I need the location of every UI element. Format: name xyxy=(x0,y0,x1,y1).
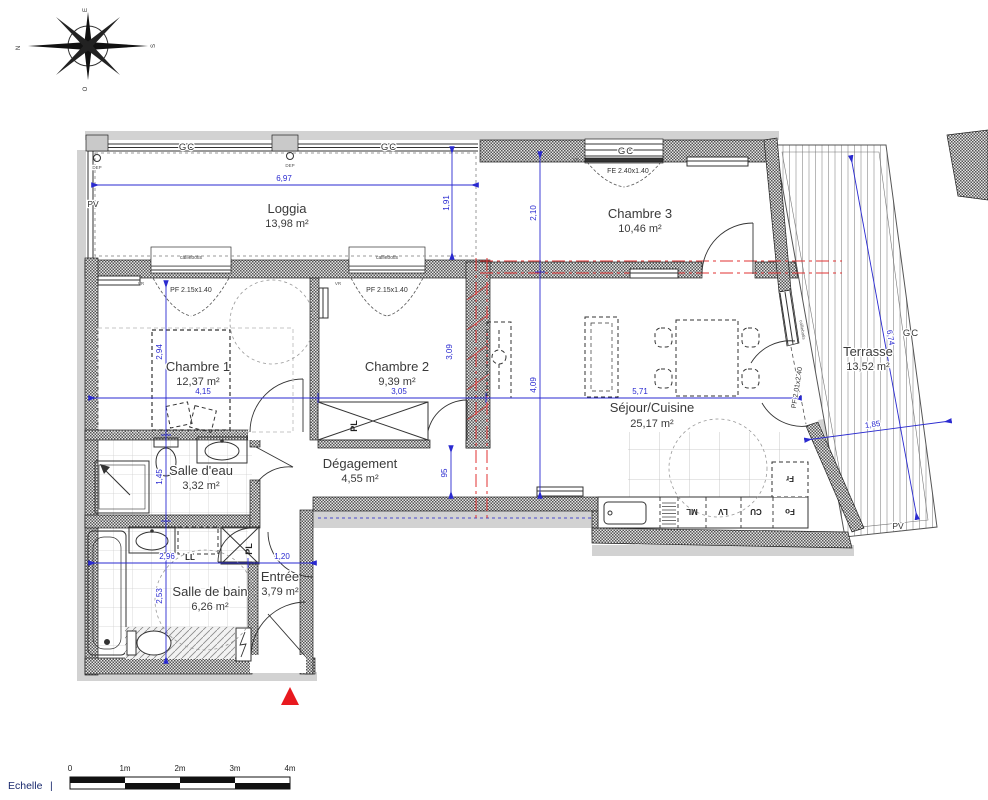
pv-label: PV xyxy=(87,199,99,209)
lave-vaisselle-label: LV xyxy=(718,507,728,516)
room-area-loggia: 13,98 m² xyxy=(265,218,309,230)
chair xyxy=(742,328,759,347)
four-label: Fo xyxy=(785,507,795,516)
cuisson-label: CU xyxy=(750,507,762,516)
frigo-label: Fr xyxy=(786,474,794,483)
south-wall xyxy=(85,658,252,674)
dim-salle-bain-depth: 2,53 xyxy=(155,588,164,604)
scale-tick-2: 2m xyxy=(174,764,185,773)
vr-label: VR xyxy=(335,281,342,286)
gc-label: GC xyxy=(903,328,919,339)
dep-label: DEP xyxy=(92,165,101,170)
chambre3-window-label: FE 2.40x1.40 xyxy=(607,168,649,175)
degagement-south-wall xyxy=(313,497,605,511)
joint-wall xyxy=(466,262,490,448)
dep-drain-icon xyxy=(287,153,294,160)
neighbour-wall xyxy=(947,130,988,200)
caillebotis-label: caillebotis xyxy=(180,255,202,261)
sejour-furniture xyxy=(487,317,759,398)
entree-east-wall xyxy=(300,510,313,674)
nightstand xyxy=(166,402,192,428)
room-name-degagement: Dégagement xyxy=(323,456,398,471)
dim-sejour-width: 5,71 xyxy=(632,387,648,396)
scale-tick-3: 3m xyxy=(229,764,240,773)
gc-label: GC xyxy=(179,142,195,153)
dim-chambre2-depth: 3,09 xyxy=(445,344,454,360)
dim-chambre2-width: 3,05 xyxy=(391,387,407,396)
placard-label: PL xyxy=(349,420,359,432)
room-name-sejour: Séjour/Cuisine xyxy=(610,400,695,415)
room-area-entree: 3,79 m² xyxy=(261,586,299,598)
dim-loggia-depth: 1,91 xyxy=(442,195,451,211)
room-name-salle-bain: Salle de bain xyxy=(172,584,247,599)
bath-partition-wall xyxy=(85,515,255,528)
dep-label: DEP xyxy=(285,163,294,168)
sideboard xyxy=(585,317,618,397)
scale-tick-1: 1m xyxy=(119,764,130,773)
dining-table xyxy=(676,320,738,396)
room-area-terrasse: 13,52 m² xyxy=(846,361,890,373)
chair xyxy=(655,369,672,388)
scale-label: Echelle xyxy=(8,780,43,792)
chambre1-window-label: PF 2.15x1.40 xyxy=(170,287,212,294)
room-area-salle-bain: 6,26 m² xyxy=(191,601,229,613)
gc-label: GC xyxy=(618,146,634,157)
dim-entree-width: 1,20 xyxy=(274,552,290,561)
placard-label: PL xyxy=(244,543,254,555)
dim-passage-width: 95 xyxy=(440,468,449,477)
nightstand xyxy=(190,406,217,433)
scale-bar: Echelle | 0 1m 2m 3m 4m xyxy=(8,764,296,792)
chambre2-window-label: PF 2.15x1.40 xyxy=(366,287,408,294)
drainer xyxy=(662,503,676,524)
room-area-salle-eau: 3,32 m² xyxy=(182,480,220,492)
room-area-chambre3: 10,46 m² xyxy=(618,223,662,235)
dim-chambre3-depth: 2,10 xyxy=(529,205,538,221)
room-area-sejour: 25,17 m² xyxy=(630,418,674,430)
entrance-marker-icon xyxy=(281,687,299,705)
railing-post xyxy=(86,135,108,151)
dim-salle-bain-width: 2,96 xyxy=(159,552,175,561)
west-wall xyxy=(85,258,98,675)
dim-loggia-width: 6,97 xyxy=(276,174,292,183)
machine-laver-label: ML xyxy=(686,507,698,516)
room-area-degagement: 4,55 m² xyxy=(341,473,379,485)
lave-linge-label: LL xyxy=(185,553,195,562)
scale-tick-mark: | xyxy=(50,780,53,792)
dim-salle-eau-depth: 1,45 xyxy=(155,469,164,485)
dim-chambre1-depth: 2,94 xyxy=(155,344,164,360)
vr-label: VR xyxy=(138,281,145,286)
railing-post xyxy=(272,135,298,151)
chair xyxy=(655,328,672,347)
compass-south: S xyxy=(151,44,157,48)
room-name-chambre1: Chambre 1 xyxy=(166,359,230,374)
vr-label: VR xyxy=(573,157,580,162)
room-name-entree: Entrée xyxy=(261,569,299,584)
compass-east: E xyxy=(83,8,89,12)
room-name-chambre3: Chambre 3 xyxy=(608,206,672,221)
caillebotis-label: caillebotis xyxy=(798,320,806,341)
terrasse-door-label: PF 2.01x2.40 xyxy=(791,367,804,409)
room-name-loggia: Loggia xyxy=(267,201,307,216)
chambre2-south-wall xyxy=(318,440,430,448)
room-name-salle-eau: Salle d'eau xyxy=(169,463,233,478)
compass-north: N xyxy=(16,46,22,50)
floor-plan-drawing: Loggia 13,98 m² Chambre 3 10,46 m² Terra… xyxy=(0,0,988,800)
compass-rose-icon: N E S O xyxy=(16,8,157,91)
pv-label: PV xyxy=(892,521,904,531)
floor-finishes xyxy=(92,145,937,656)
wc-tank xyxy=(127,631,136,655)
chair xyxy=(742,369,759,388)
compass-west: O xyxy=(83,86,89,91)
room-name-terrasse: Terrasse xyxy=(843,344,893,359)
gc-label: GC xyxy=(381,142,397,153)
dim-chambre1-width: 4,15 xyxy=(195,387,211,396)
chambre2-closet xyxy=(318,402,428,440)
room-name-chambre2: Chambre 2 xyxy=(365,359,429,374)
floor-plan-page: Loggia 13,98 m² Chambre 3 10,46 m² Terra… xyxy=(0,0,988,800)
scale-tick-4: 4m xyxy=(284,764,295,773)
scale-tick-0: 0 xyxy=(68,764,73,773)
caillebotis-label: caillebotis xyxy=(376,255,398,261)
facade-wall xyxy=(85,260,490,278)
dim-sejour-depth: 4,09 xyxy=(529,377,538,393)
